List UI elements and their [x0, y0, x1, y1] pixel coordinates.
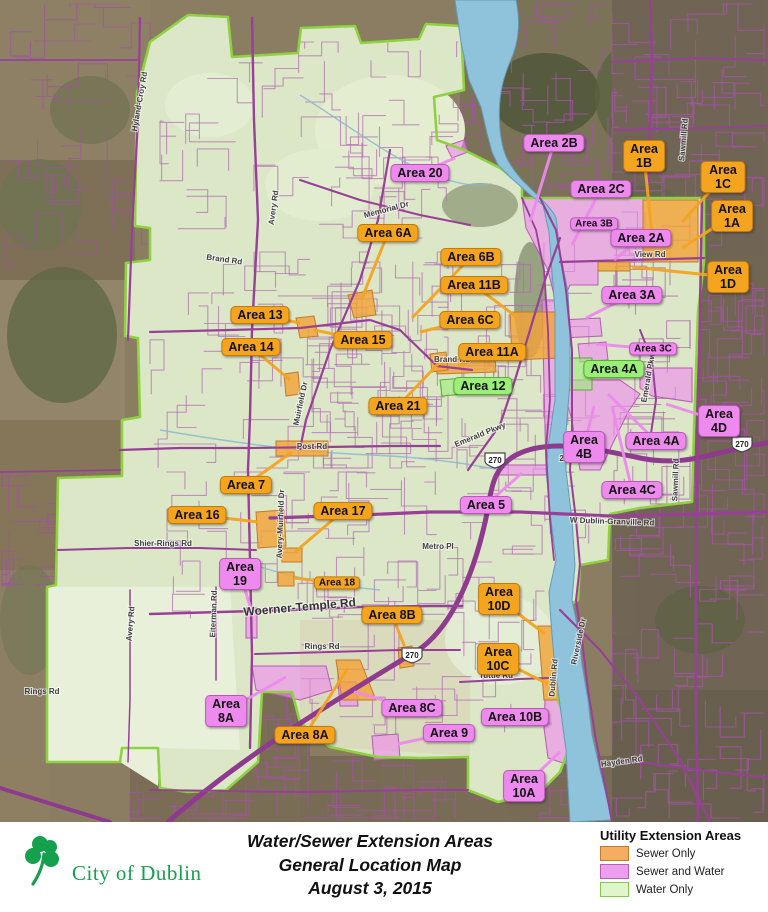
road-label: 257	[559, 454, 573, 463]
legend-items: Sewer OnlySewer and WaterWater Only	[600, 846, 765, 897]
road-label: Sawmill Rd	[670, 458, 680, 501]
road-label: Eiterman Rd	[208, 590, 219, 638]
road-label: Post Rd	[297, 442, 327, 451]
legend-item-label: Water Only	[636, 884, 693, 896]
legend: Utility Extension Areas Sewer OnlySewer …	[600, 828, 765, 900]
road-label: Brand Rd	[434, 355, 470, 364]
highway-shield-270: 270	[485, 453, 505, 468]
legend-item-label: Sewer and Water	[636, 866, 724, 878]
legend-swatch	[600, 882, 629, 897]
page: Memorial DrMuirfield DrBrand RdBrand RdP…	[0, 0, 768, 912]
legend-swatch	[600, 846, 629, 861]
map-footer: City of Dublin Water/Sewer Extension Are…	[0, 822, 768, 912]
legend-item-1: Sewer and Water	[600, 864, 765, 879]
road-label: Rings Rd	[24, 687, 59, 696]
map-title-line1: Water/Sewer Extension Areas	[170, 830, 570, 854]
legend-item-label: Sewer Only	[636, 848, 695, 860]
legend-item-0: Sewer Only	[600, 846, 765, 861]
map-canvas: Memorial DrMuirfield DrBrand RdBrand RdP…	[0, 0, 768, 822]
svg-text:270: 270	[405, 651, 419, 660]
highway-shield-270: 270	[402, 648, 422, 663]
map-title-line3: August 3, 2015	[170, 877, 570, 901]
road-label: Shier-Rings Rd	[134, 539, 192, 548]
road-label: Tuttle Rd	[479, 671, 513, 680]
legend-item-2: Water Only	[600, 882, 765, 897]
legend-title: Utility Extension Areas	[600, 828, 765, 843]
svg-text:270: 270	[735, 440, 749, 449]
road-label: View Rd	[635, 250, 666, 259]
highway-shield-270: 270	[732, 437, 752, 452]
svg-text:270: 270	[488, 456, 502, 465]
leader-line-12	[456, 386, 483, 388]
map-image: Memorial DrMuirfield DrBrand RdBrand RdP…	[0, 0, 768, 822]
road-label: Rings Rd	[304, 642, 339, 651]
map-title: Water/Sewer Extension Areas General Loca…	[170, 830, 570, 901]
map-title-line2: General Location Map	[170, 854, 570, 878]
road-label: Metro Pl	[422, 542, 454, 551]
legend-swatch	[600, 864, 629, 879]
shamrock-icon	[20, 832, 70, 888]
